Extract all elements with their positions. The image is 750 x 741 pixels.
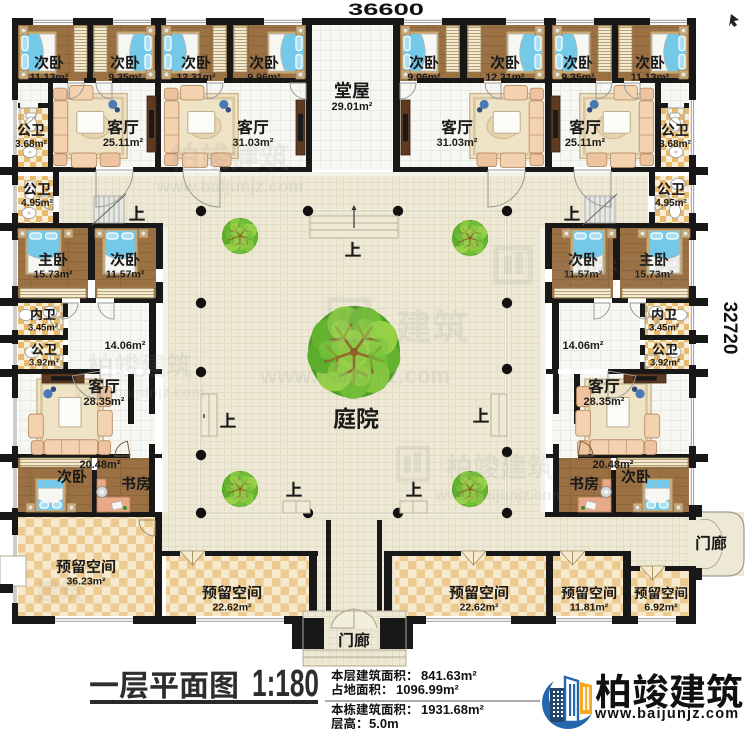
svg-text:11.13m²: 11.13m²: [30, 72, 69, 84]
svg-text:www.baijunjz.com: www.baijunjz.com: [434, 487, 564, 504]
svg-text:20.48m²: 20.48m²: [593, 459, 634, 471]
svg-text:9.35m²: 9.35m²: [108, 72, 142, 84]
svg-text:5.0m: 5.0m: [369, 716, 399, 731]
svg-text:www.baijunjz.com: www.baijunjz.com: [156, 177, 304, 196]
svg-text:4.95m²: 4.95m²: [655, 198, 687, 209]
svg-text:20.48m²: 20.48m²: [80, 459, 121, 471]
svg-text:www.baijunjz.com: www.baijunjz.com: [74, 384, 204, 401]
svg-text:11.81m²: 11.81m²: [570, 602, 609, 614]
svg-text:28.35m²: 28.35m²: [584, 396, 625, 408]
svg-text:3.45m²: 3.45m²: [649, 323, 679, 334]
svg-text:3.45m²: 3.45m²: [28, 323, 58, 334]
svg-text:14.06m²: 14.06m²: [563, 340, 604, 352]
svg-text:4.95m²: 4.95m²: [21, 198, 53, 209]
svg-text:3.92m²: 3.92m²: [29, 358, 59, 369]
svg-text:12.31m²: 12.31m²: [176, 72, 216, 84]
svg-text:31.03m²: 31.03m²: [437, 137, 478, 149]
svg-text:12.31m²: 12.31m²: [485, 72, 525, 84]
svg-text:25.11m²: 25.11m²: [103, 137, 144, 149]
svg-text:14.06m²: 14.06m²: [105, 340, 146, 352]
svg-text:1096.99m²: 1096.99m²: [396, 682, 460, 697]
svg-text:www.baijunjz.com: www.baijunjz.com: [594, 706, 739, 722]
svg-text:11.13m²: 11.13m²: [631, 72, 670, 84]
svg-text:1931.68m²: 1931.68m²: [421, 702, 485, 717]
svg-text:841.63m²: 841.63m²: [421, 668, 477, 683]
svg-text:22.62m²: 22.62m²: [459, 602, 499, 614]
svg-text:3.92m²: 3.92m²: [650, 358, 680, 369]
svg-text:9.35m²: 9.35m²: [561, 72, 595, 84]
svg-text:1:180: 1:180: [252, 663, 319, 705]
svg-text:25.11m²: 25.11m²: [565, 137, 606, 149]
svg-text:15.73m²: 15.73m²: [33, 269, 73, 281]
svg-text:3.68m²: 3.68m²: [659, 139, 691, 150]
svg-text:29.01m²: 29.01m²: [332, 101, 373, 113]
svg-text:32720: 32720: [719, 302, 740, 355]
svg-text:6.92m²: 6.92m²: [644, 602, 678, 614]
svg-text:9.06m²: 9.06m²: [407, 72, 441, 84]
svg-text:3.68m²: 3.68m²: [15, 139, 47, 150]
svg-text:www.baijunjz.com: www.baijunjz.com: [259, 363, 450, 388]
svg-text:11.57m²: 11.57m²: [106, 269, 145, 281]
svg-text:36600: 36600: [348, 1, 424, 19]
svg-text:9.96m²: 9.96m²: [247, 72, 281, 84]
svg-text:22.62m²: 22.62m²: [212, 602, 252, 614]
